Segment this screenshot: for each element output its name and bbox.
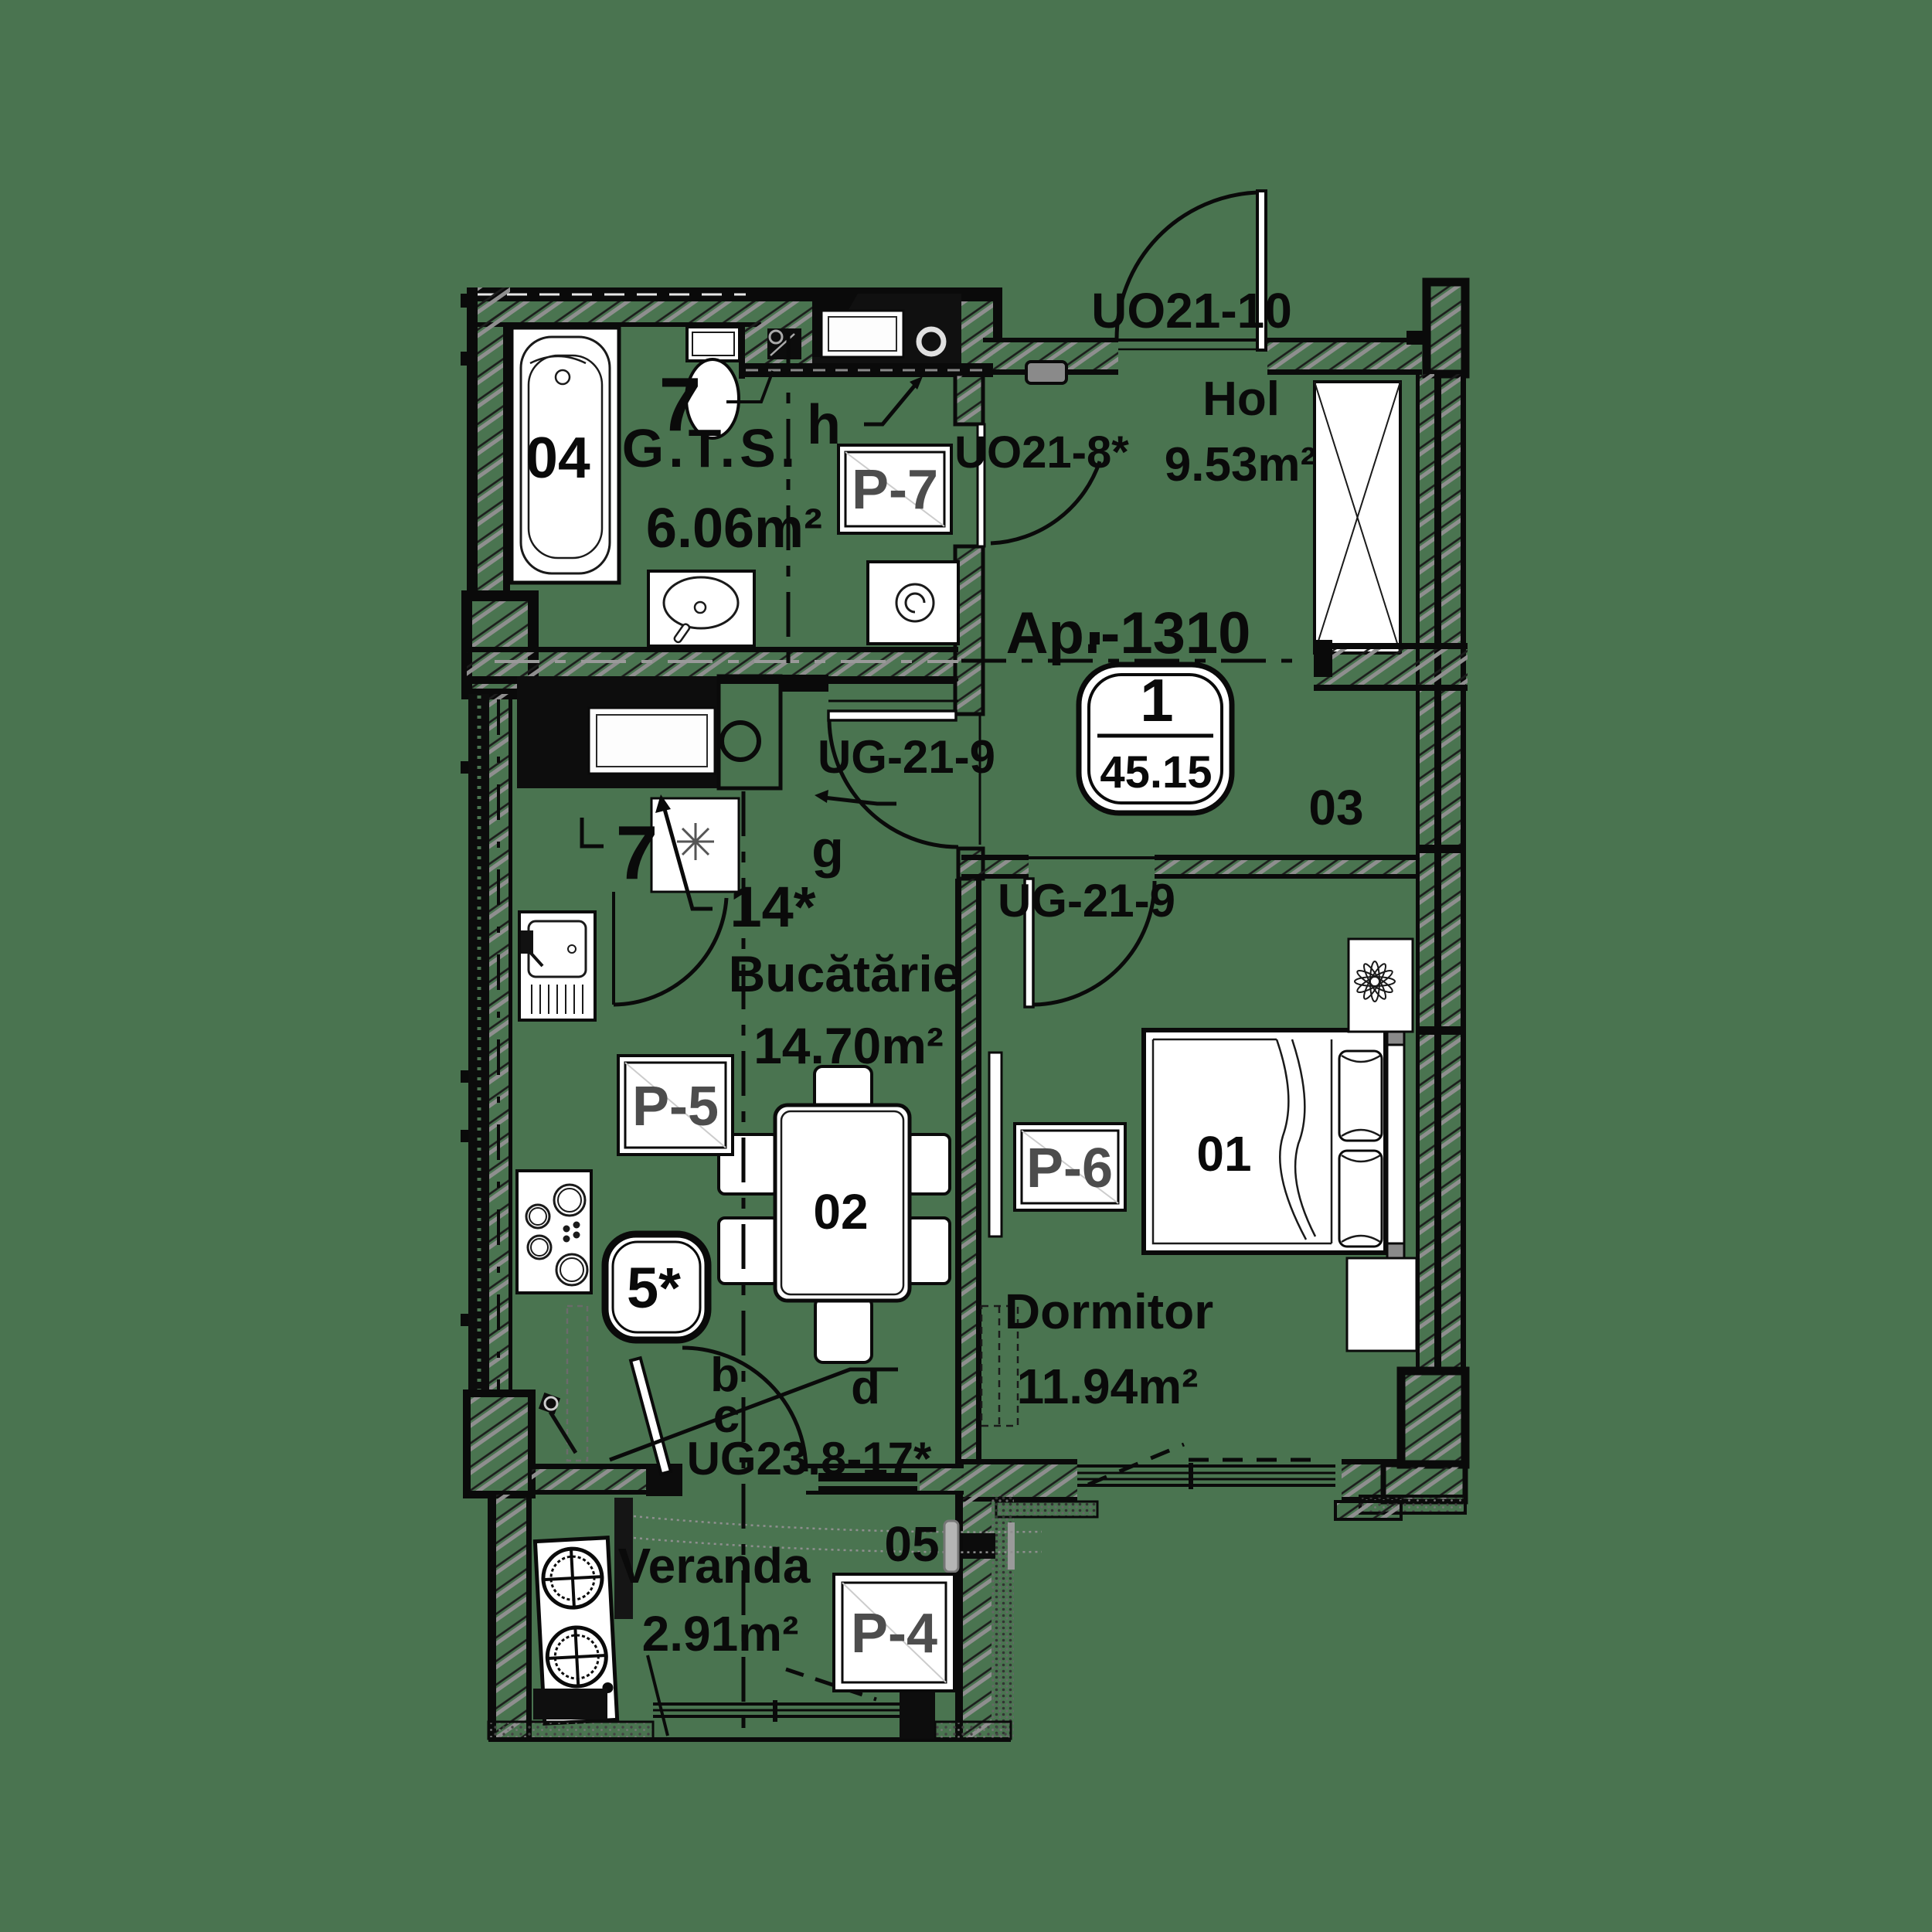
svg-text:05: 05: [884, 1516, 939, 1572]
svg-text:UG23.8-17*: UG23.8-17*: [687, 1433, 932, 1485]
svg-text:11.94m²: 11.94m²: [1017, 1359, 1199, 1414]
svg-text:UO21-8*: UO21-8*: [954, 427, 1129, 478]
svg-text:Ap.-1310: Ap.-1310: [1006, 600, 1251, 666]
svg-text:G.T.S.: G.T.S.: [622, 418, 800, 478]
svg-text:g: g: [811, 820, 844, 879]
svg-text:Dormitor: Dormitor: [1005, 1284, 1213, 1339]
svg-text:5*: 5*: [627, 1256, 681, 1320]
svg-text:Veranda: Veranda: [617, 1538, 810, 1594]
svg-text:1: 1: [1140, 666, 1173, 734]
svg-text:04: 04: [526, 425, 590, 490]
svg-text:UG-21-9: UG-21-9: [998, 875, 1175, 927]
svg-text:Bucătărie: Bucătărie: [729, 945, 961, 1002]
svg-text:2.91m²: 2.91m²: [642, 1606, 799, 1662]
svg-text:14*: 14*: [730, 875, 815, 939]
svg-text:P-6: P-6: [1026, 1138, 1113, 1199]
svg-text:h: h: [807, 394, 841, 456]
svg-text:P-4: P-4: [851, 1603, 937, 1665]
svg-text:P-7: P-7: [852, 459, 938, 521]
svg-text:14.70m²: 14.70m²: [753, 1017, 944, 1074]
svg-text:9.53m²: 9.53m²: [1165, 438, 1316, 492]
svg-text:P-5: P-5: [632, 1076, 719, 1138]
svg-text:45.15: 45.15: [1100, 747, 1212, 798]
svg-text:Hol: Hol: [1202, 372, 1280, 426]
svg-text:6.06m²: 6.06m²: [646, 498, 822, 560]
svg-text:d: d: [851, 1361, 880, 1414]
svg-text:UG-21-9: UG-21-9: [818, 731, 995, 783]
svg-text:01: 01: [1196, 1126, 1251, 1182]
svg-text:02: 02: [813, 1184, 868, 1240]
svg-text:UO21-10: UO21-10: [1091, 283, 1292, 338]
svg-text:7: 7: [616, 810, 658, 895]
svg-text:03: 03: [1308, 780, 1363, 835]
